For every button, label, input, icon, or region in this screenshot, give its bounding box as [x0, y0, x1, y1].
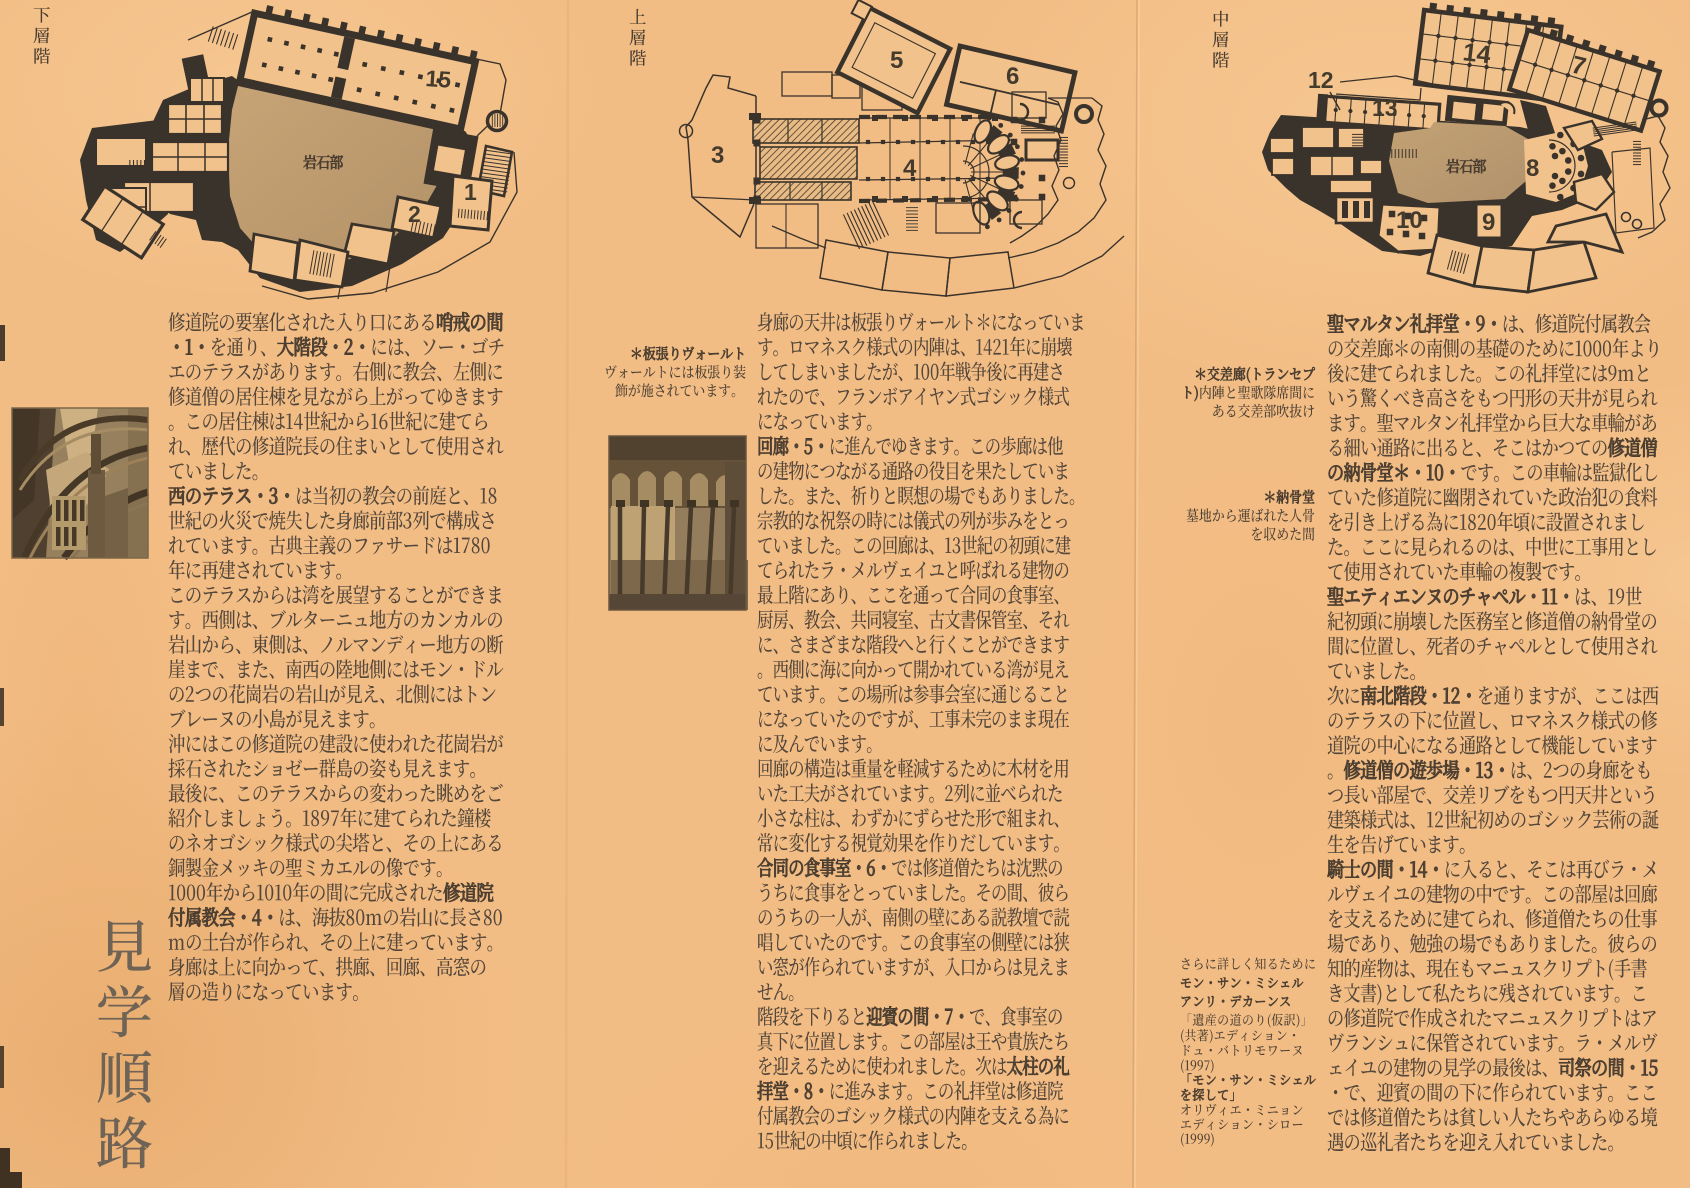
svg-text:6: 6 [1006, 63, 1019, 90]
svg-text:1: 1 [464, 179, 477, 205]
svg-text:5: 5 [890, 47, 903, 74]
svg-text:4: 4 [903, 155, 917, 182]
svg-text:2: 2 [408, 201, 421, 227]
svg-text:8: 8 [1526, 155, 1539, 182]
svg-text:14: 14 [1461, 38, 1492, 69]
svg-text:9: 9 [1482, 209, 1495, 236]
svg-text:15: 15 [425, 65, 453, 93]
svg-text:10: 10 [1396, 207, 1423, 234]
svg-text:3: 3 [711, 142, 724, 169]
svg-text:13: 13 [1372, 95, 1398, 121]
svg-text:12: 12 [1308, 67, 1334, 93]
